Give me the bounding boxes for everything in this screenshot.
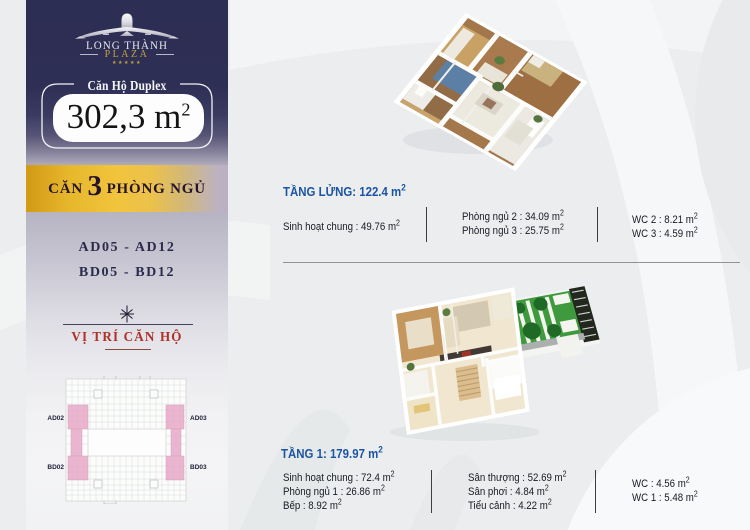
svg-text:BD03: BD03 (190, 464, 207, 471)
svg-text:AD02: AD02 (47, 415, 64, 422)
svg-text:BD02: BD02 (47, 464, 64, 471)
svg-text:AD03: AD03 (190, 415, 207, 422)
